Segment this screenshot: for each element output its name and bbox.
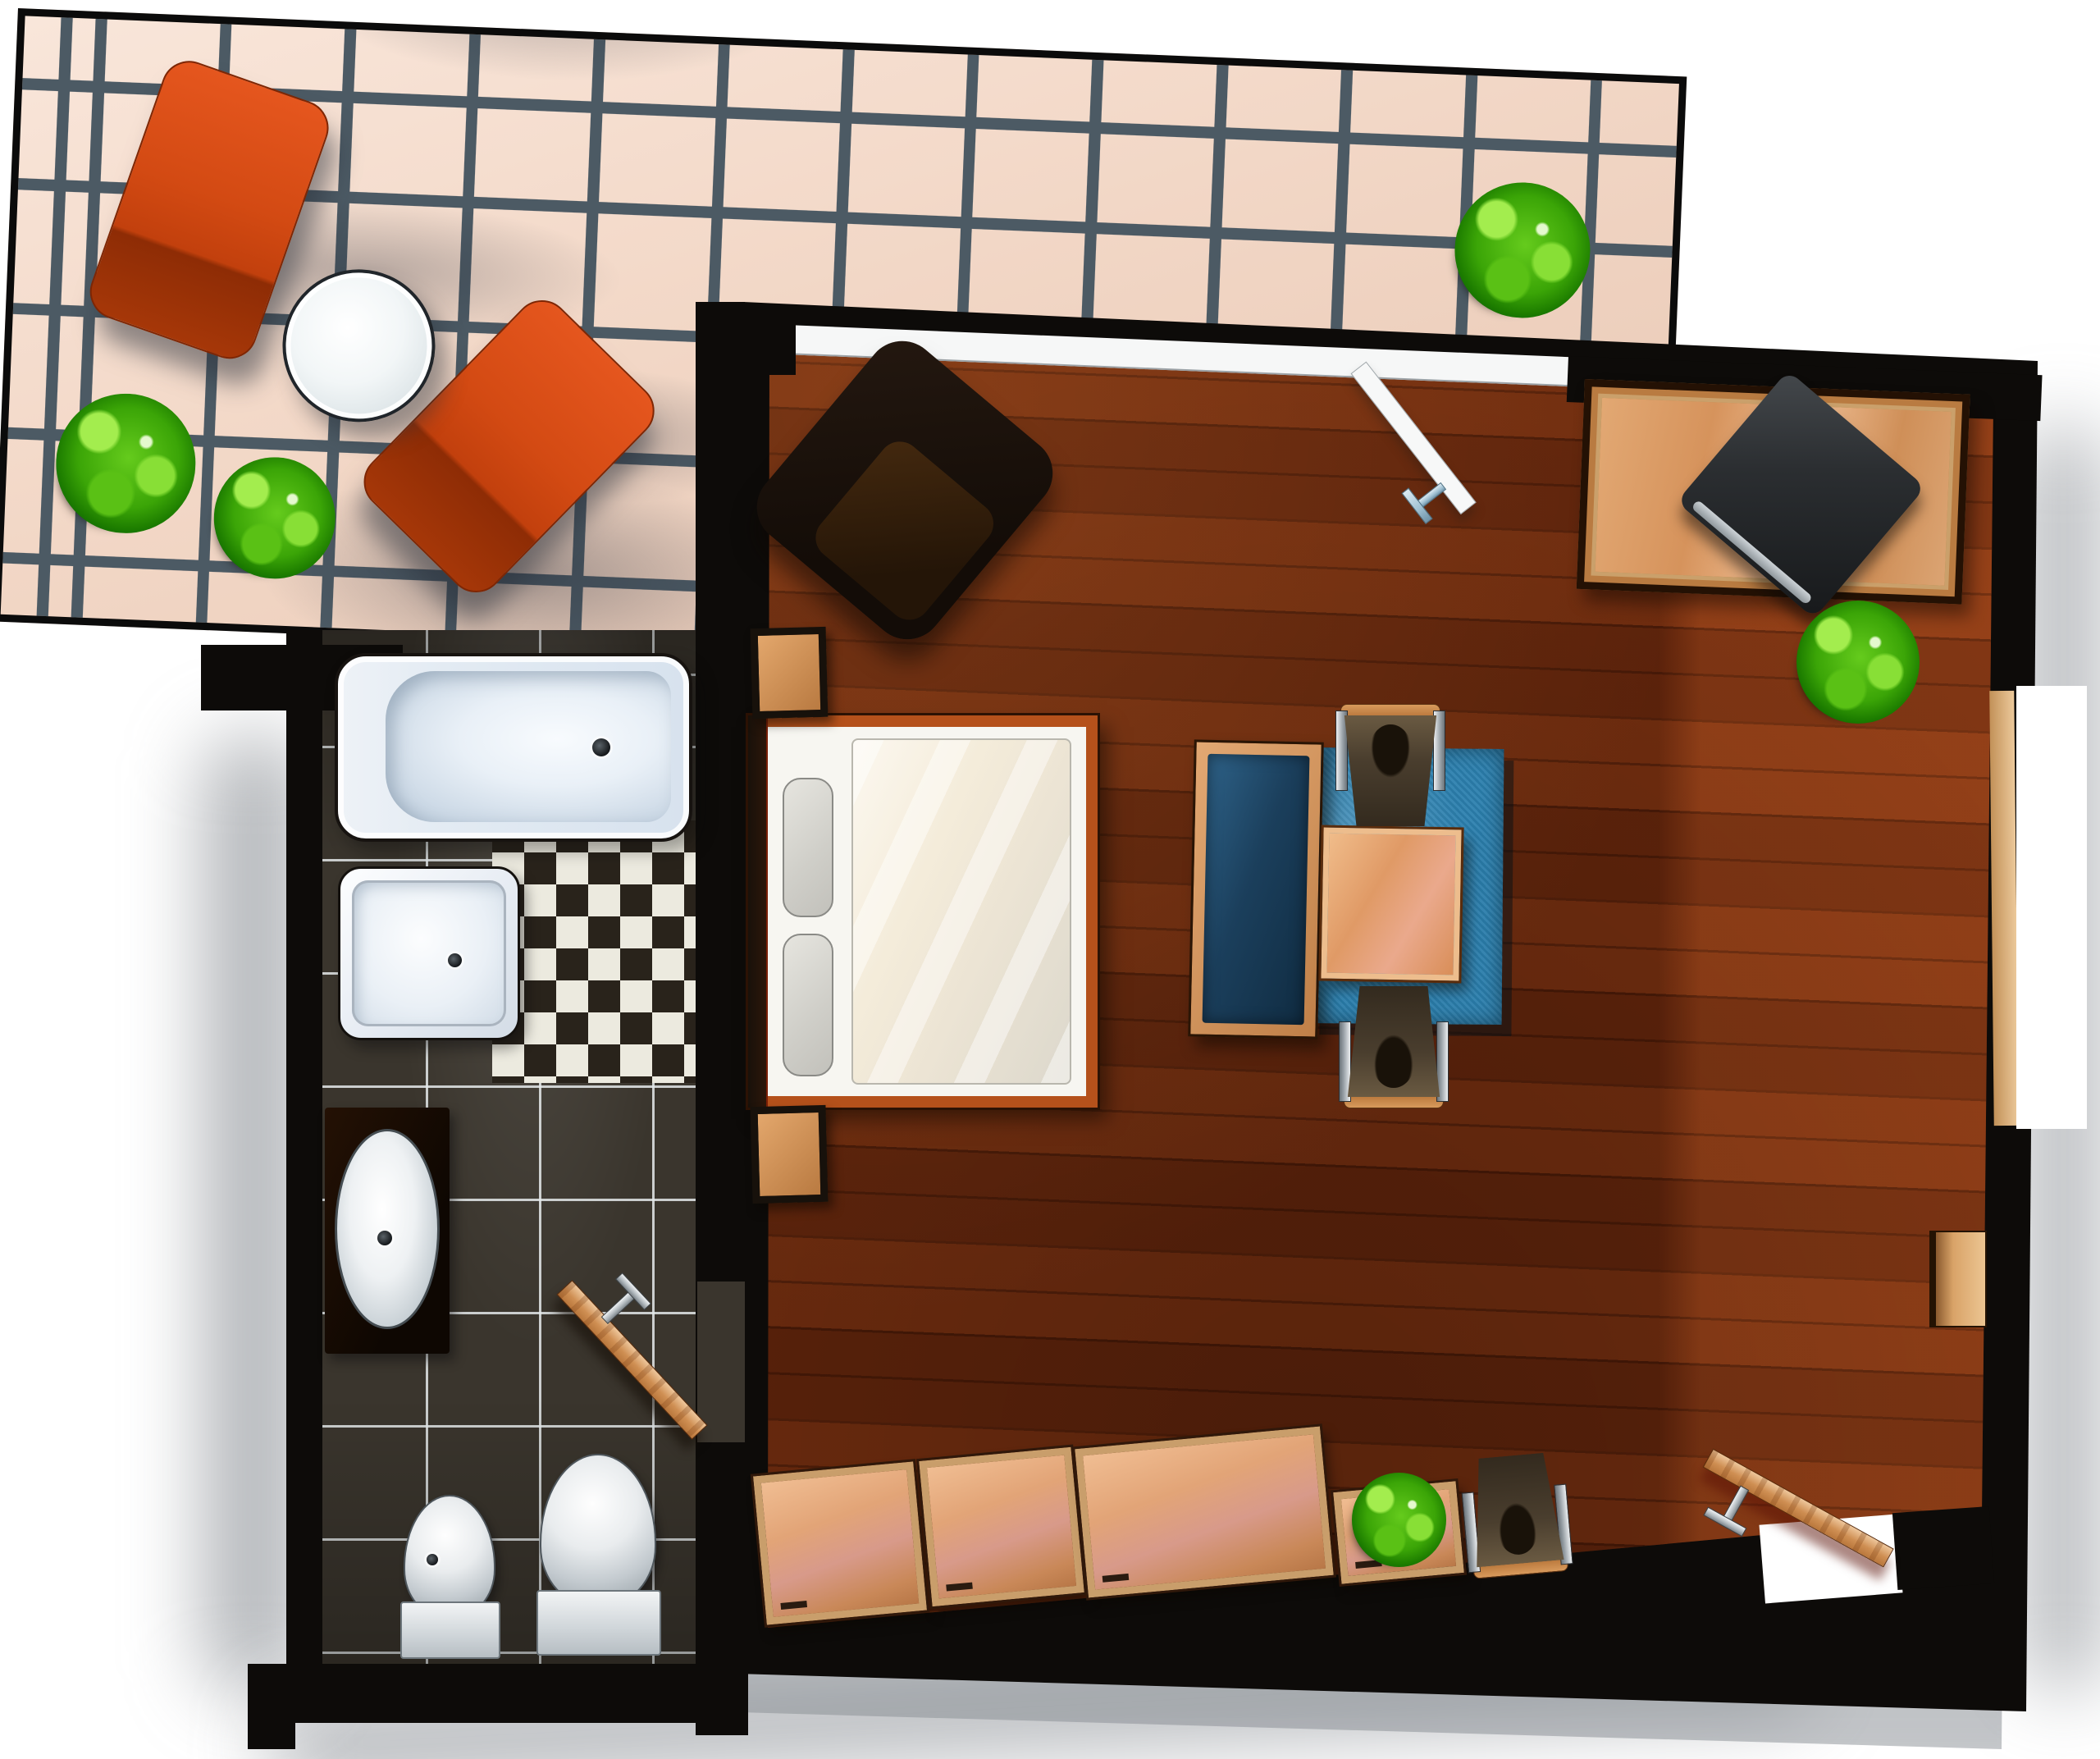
round-side-table: [280, 267, 438, 425]
window-sill: [1989, 691, 2019, 1126]
side-chair: [1457, 1446, 1576, 1580]
sideboard: [753, 1461, 927, 1624]
bathtub-basin: [386, 671, 671, 822]
window-opening: [2016, 686, 2087, 1129]
bench: [1188, 739, 1324, 1039]
bathroom-wall-left: [286, 630, 322, 1723]
toilet-tank: [536, 1590, 661, 1656]
washbasin-drain: [377, 1231, 392, 1245]
sideboard: [919, 1447, 1084, 1606]
shower-tray: [338, 866, 520, 1040]
bedside-table: [750, 1105, 828, 1204]
dining-table: [1321, 828, 1461, 981]
wall-stub: [1892, 1506, 1994, 1590]
pillow: [783, 778, 833, 917]
bathroom-wall-stub: [248, 1664, 295, 1749]
potted-plant: [212, 455, 338, 581]
checkerboard-floor: [492, 820, 720, 1083]
bathroom-wall-bottom: [248, 1664, 743, 1723]
bidet-drain: [427, 1554, 438, 1565]
corner-wall-patch: [696, 1620, 748, 1735]
dining-chair: [1337, 981, 1450, 1108]
bathtub: [335, 653, 692, 842]
wall-shelf: [1929, 1231, 1987, 1327]
potted-plant: [53, 391, 199, 536]
washbasin-counter: [325, 1108, 450, 1354]
desk: [1577, 379, 1970, 605]
bed-duvet: [851, 738, 1071, 1085]
chair-seat: [1344, 986, 1444, 1097]
bench-cushion: [1203, 754, 1310, 1026]
potted-plant: [1452, 180, 1593, 321]
chair-seat: [1463, 1451, 1568, 1568]
bathtub-drain: [592, 738, 610, 756]
bathroom-door-opening: [697, 1282, 745, 1442]
dining-chair: [1334, 704, 1447, 831]
shower-drain: [448, 953, 462, 967]
washbasin: [335, 1129, 440, 1329]
chair-seat: [1340, 715, 1440, 826]
pillow: [783, 934, 833, 1076]
floor-plan-canvas: [0, 0, 2100, 1759]
partition-wall: [696, 302, 745, 1706]
potted-plant: [1352, 1473, 1446, 1567]
sideboard: [1075, 1427, 1334, 1598]
armchair: [794, 369, 1016, 611]
bed-headboard: [748, 715, 768, 1108]
double-bed: [748, 715, 1098, 1108]
potted-plant: [1796, 601, 1920, 724]
bidet-tank: [400, 1601, 500, 1659]
armchair-seat: [806, 432, 1002, 628]
shower-tray-basin: [352, 880, 506, 1026]
bedside-table: [751, 627, 829, 719]
